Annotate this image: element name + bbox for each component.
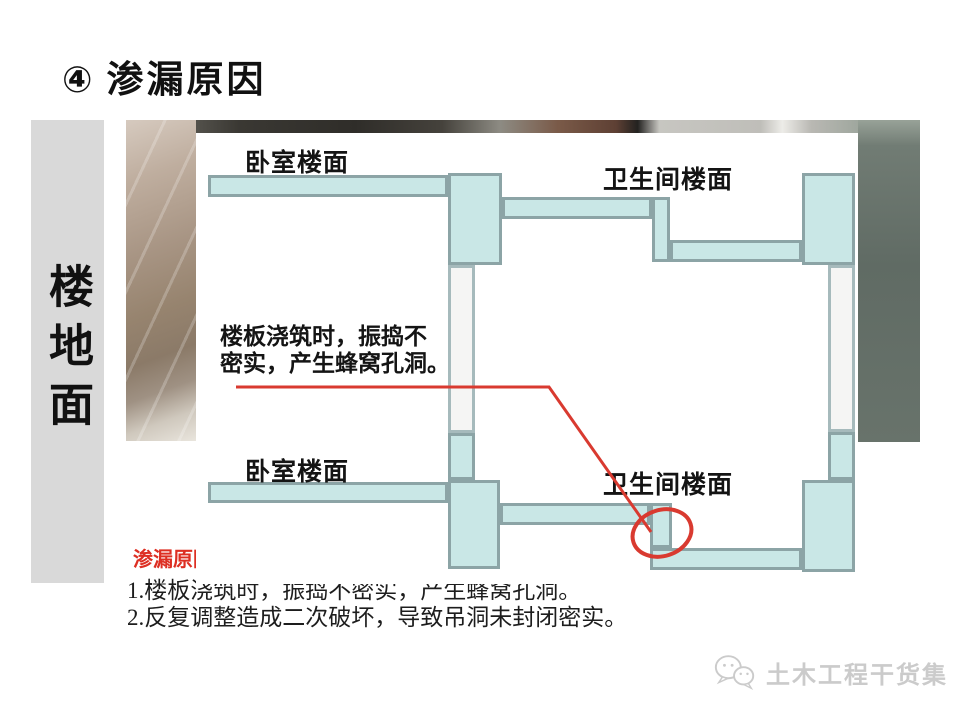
photo-marble-wall — [126, 120, 196, 441]
slab-bathroom-lower-low — [650, 548, 802, 570]
photo-ceiling-strip — [196, 120, 920, 134]
watermark-text: 土木工程干货集 — [766, 655, 948, 690]
label-bathroom-upper: 卫生间楼面 — [603, 160, 733, 196]
sidebar-label: 楼地面 — [45, 263, 90, 440]
photo-gray-wall — [858, 120, 920, 442]
label-bedroom-upper: 卧室楼面 — [245, 143, 349, 179]
chat-bubbles-logo-icon — [712, 652, 758, 692]
slab-bathroom-lower-high — [500, 503, 650, 525]
slab-step-lower — [650, 503, 672, 548]
slide: ④ 渗漏原因 楼地面 渗漏原因 1.楼板浇筑时，振捣不密实，产生蜂窝孔洞。 2.… — [0, 0, 960, 720]
defect-annotation-line2: 密实，产生蜂窝孔洞。 — [220, 350, 450, 377]
title-number-badge: ④ — [62, 58, 92, 102]
page-title: 渗漏原因 — [106, 58, 266, 102]
wall-middle-concrete — [448, 433, 475, 480]
defect-annotation-line1: 楼板浇筑时，振捣不 — [220, 323, 450, 350]
column-middle-upper — [448, 173, 502, 265]
defect-annotation: 楼板浇筑时，振捣不 密实，产生蜂窝孔洞。 — [220, 323, 450, 377]
slab-step-upper — [652, 197, 670, 262]
column-right-lower — [802, 480, 855, 572]
slab-bathroom-upper-low — [670, 240, 802, 262]
notes-item-2: 2.反复调整造成二次破坏，导致吊洞未封闭密实。 — [127, 598, 627, 632]
label-bathroom-lower: 卫生间楼面 — [603, 465, 733, 501]
wall-right-infill — [828, 265, 855, 432]
label-bedroom-lower: 卧室楼面 — [245, 452, 349, 488]
slab-bathroom-upper-high — [502, 197, 652, 219]
column-middle-lower — [448, 480, 500, 569]
watermark: 土木工程干货集 — [712, 652, 948, 692]
section-sidebar: 楼地面 — [31, 120, 104, 583]
column-right-upper — [802, 173, 855, 265]
wall-right-concrete — [828, 432, 855, 480]
wall-middle-infill — [448, 265, 475, 433]
slide-title: ④ 渗漏原因 — [62, 58, 266, 102]
section-diagram: 卧室楼面 卫生间楼面 卧室楼面 卫生间楼面 楼板浇筑时，振捣不 密实，产生蜂窝孔… — [196, 133, 858, 584]
